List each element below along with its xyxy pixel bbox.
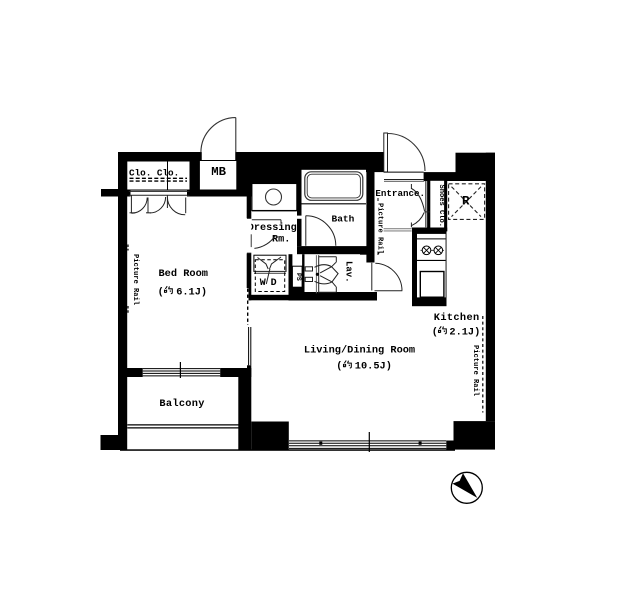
svg-text:Bed Room: Bed Room (159, 268, 208, 280)
svg-text:Lav.: Lav. (344, 261, 354, 283)
svg-text:6.1J): 6.1J) (176, 286, 207, 298)
svg-text:MB: MB (211, 165, 226, 179)
svg-text:(: ( (432, 326, 438, 338)
svg-text:D: D (271, 278, 277, 289)
svg-text:PS: PS (295, 273, 302, 281)
svg-text:(: ( (336, 361, 342, 373)
svg-text:W: W (260, 278, 266, 289)
svg-text:2.1J): 2.1J) (449, 326, 480, 338)
svg-text:Dressing: Dressing (248, 222, 297, 234)
svg-text:Clo. Clo.: Clo. Clo. (129, 168, 179, 179)
svg-text:R: R (462, 195, 470, 209)
svg-text:Picture Rail: Picture Rail (376, 203, 384, 254)
svg-text:Bath: Bath (332, 213, 355, 224)
svg-text:Balcony: Balcony (159, 398, 204, 410)
svg-text:Picture Rail: Picture Rail (471, 345, 479, 396)
svg-text:10.5J): 10.5J) (355, 361, 392, 373)
svg-text:Picture Rail: Picture Rail (131, 254, 139, 305)
svg-text:Kitchen: Kitchen (434, 312, 480, 324)
svg-text:Living/Dining Room: Living/Dining Room (304, 344, 415, 356)
svg-text:Shoes Clo.: Shoes Clo. (437, 185, 445, 228)
svg-text:(: ( (158, 286, 164, 298)
